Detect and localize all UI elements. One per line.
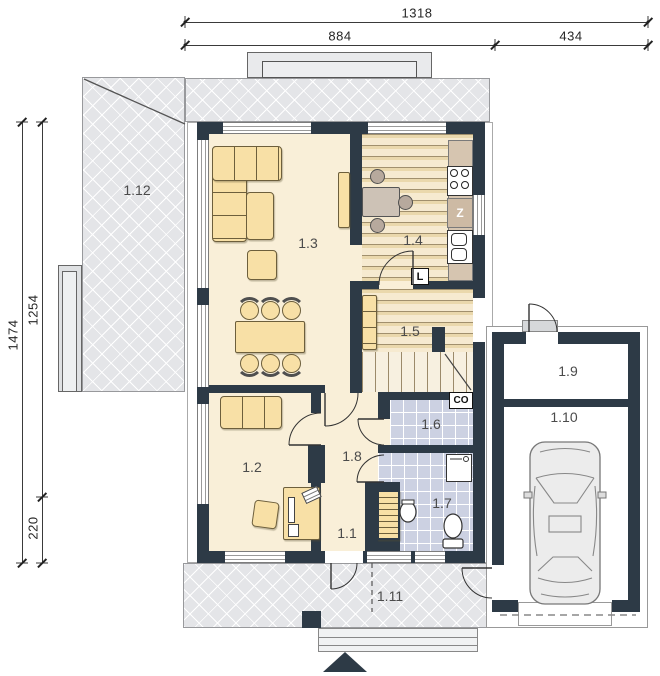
window-bath-south bbox=[415, 551, 445, 563]
monitor-icon bbox=[288, 497, 295, 523]
washing-machine-icon bbox=[446, 454, 472, 482]
garage-wall-south-a bbox=[492, 600, 518, 612]
fridge-marker: L bbox=[411, 268, 429, 285]
porch-pillar bbox=[302, 611, 321, 628]
wall-kitchen-west bbox=[350, 134, 362, 245]
dim-dot bbox=[647, 21, 650, 24]
hall-wardrobe bbox=[377, 490, 400, 540]
garage-storage-divider bbox=[504, 399, 628, 407]
kitchen-table bbox=[362, 187, 400, 217]
garage-wall-east bbox=[628, 332, 640, 612]
dim-value-884: 884 bbox=[328, 29, 351, 44]
dining-chair bbox=[282, 354, 301, 373]
window-hall-south bbox=[367, 551, 411, 563]
wall-kitchen-south-a bbox=[350, 281, 379, 289]
dim-value-1474: 1474 bbox=[6, 320, 21, 351]
room-label-1-4: 1.4 bbox=[403, 232, 422, 248]
dim-dot bbox=[647, 44, 650, 47]
room-label-1-9: 1.9 bbox=[558, 363, 577, 379]
window-kitchen-north bbox=[368, 122, 446, 134]
floor-plan: 1318 884 434 1474 1254 220 bbox=[0, 0, 660, 676]
staircase bbox=[362, 352, 473, 392]
desk-chair bbox=[251, 499, 280, 529]
dim-dot bbox=[184, 21, 187, 24]
dim-line-1474 bbox=[22, 122, 23, 563]
dim-line-884-434 bbox=[185, 45, 648, 46]
room-label-1-2: 1.2 bbox=[242, 459, 261, 475]
wall-utility-west bbox=[378, 392, 390, 419]
room-label-1-3: 1.3 bbox=[298, 235, 317, 251]
room-label-1-11: 1.11 bbox=[377, 588, 403, 604]
corridor-wardrobe bbox=[362, 295, 377, 350]
sink-basin bbox=[451, 248, 467, 261]
wall-stub-corridor bbox=[432, 327, 445, 352]
window-office-south bbox=[225, 551, 285, 563]
dim-value-220: 220 bbox=[26, 516, 41, 539]
west-steps-inner bbox=[62, 271, 77, 392]
room-label-1-5: 1.5 bbox=[400, 323, 419, 339]
burner-icon bbox=[461, 181, 469, 189]
dishwasher-icon: Z bbox=[447, 198, 473, 228]
floor-corridor bbox=[362, 289, 473, 352]
window-living-west bbox=[197, 140, 209, 288]
garage-wall-west-a bbox=[492, 332, 504, 565]
wall-corridor-west bbox=[350, 289, 362, 393]
dining-chair bbox=[282, 301, 301, 320]
burner-icon bbox=[450, 169, 458, 177]
garage-entry-threshold bbox=[522, 320, 558, 332]
office-sofa bbox=[220, 396, 282, 429]
terrace-west bbox=[82, 77, 185, 392]
dim-dot bbox=[184, 44, 187, 47]
entrance-arrow-icon bbox=[323, 652, 367, 672]
dim-line-1318 bbox=[185, 22, 648, 23]
wall-closet-bottom bbox=[365, 540, 400, 551]
entry-steps bbox=[318, 628, 478, 652]
window-living-north bbox=[223, 122, 311, 134]
stove-icon bbox=[447, 166, 473, 196]
dim-value-434: 434 bbox=[559, 29, 582, 44]
tv-cabinet bbox=[338, 172, 350, 228]
corner-sofa-horizontal bbox=[212, 146, 282, 181]
wall-utility-bath-divider bbox=[378, 445, 473, 453]
armchair bbox=[247, 250, 277, 280]
kitchen-chair bbox=[370, 218, 385, 233]
coffee-table bbox=[246, 192, 274, 240]
kitchen-sink-icon bbox=[447, 230, 473, 264]
wall-office-hall-b bbox=[308, 445, 325, 483]
room-label-1-8: 1.8 bbox=[342, 448, 361, 464]
porch-south bbox=[183, 563, 487, 628]
terrace-north bbox=[185, 78, 490, 122]
wall-living-office bbox=[197, 385, 325, 393]
window-dining-west bbox=[197, 305, 209, 387]
room-label-1-12: 1.12 bbox=[123, 182, 150, 198]
room-label-1-6: 1.6 bbox=[421, 416, 440, 432]
room-label-1-7: 1.7 bbox=[432, 495, 451, 511]
burner-icon bbox=[461, 169, 469, 177]
boiler-marker: CO bbox=[449, 392, 473, 409]
kitchen-chair bbox=[370, 169, 385, 184]
desk-device-icon bbox=[288, 524, 299, 537]
dining-table bbox=[235, 321, 305, 353]
burner-icon bbox=[450, 181, 458, 189]
window-office-west bbox=[197, 404, 209, 504]
front-door-opening bbox=[325, 551, 363, 563]
garage-wall-south-b bbox=[612, 600, 640, 612]
room-label-1-1: 1.1 bbox=[337, 525, 356, 541]
sink-basin bbox=[451, 233, 467, 246]
kitchen-chair bbox=[398, 195, 413, 210]
north-planter-inner bbox=[262, 61, 417, 78]
room-label-1-10: 1.10 bbox=[550, 409, 577, 425]
dim-value-1318: 1318 bbox=[402, 6, 433, 21]
garage-door-threshold bbox=[518, 602, 612, 626]
side-door-east bbox=[473, 298, 485, 342]
dim-dot bbox=[494, 44, 497, 47]
window-kitchen-east bbox=[473, 195, 485, 235]
wall-office-hall-a bbox=[311, 393, 321, 413]
dim-value-1254: 1254 bbox=[26, 295, 41, 326]
